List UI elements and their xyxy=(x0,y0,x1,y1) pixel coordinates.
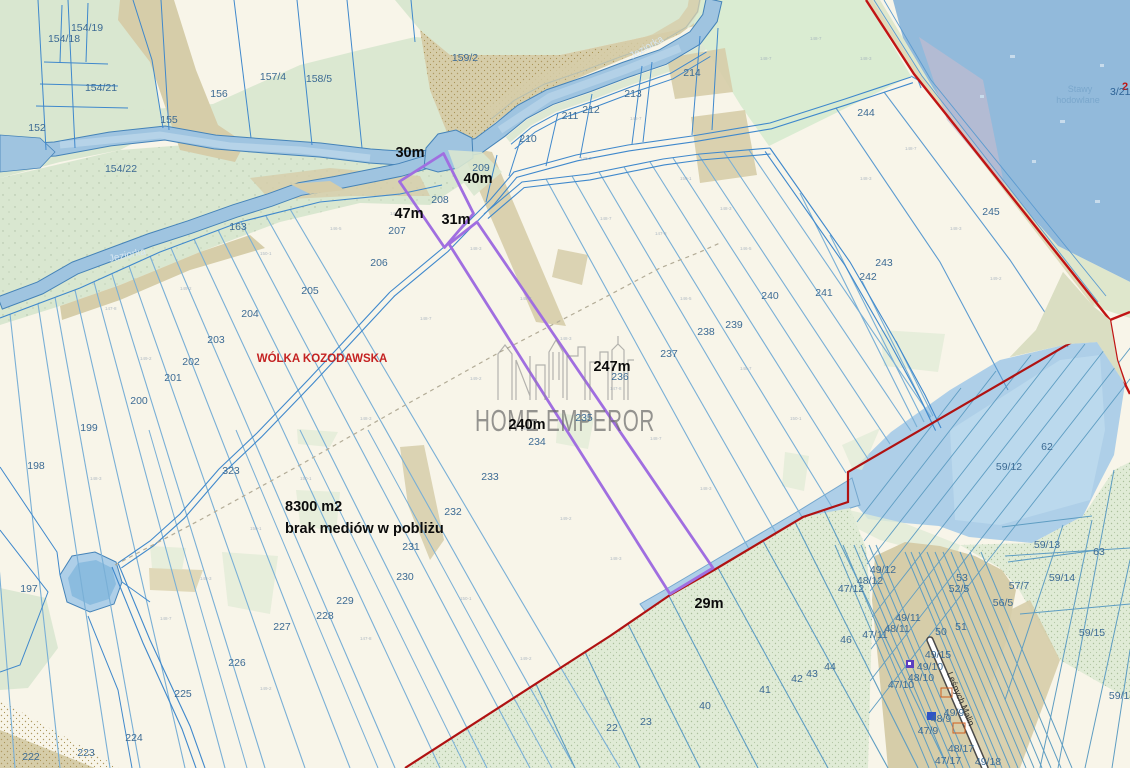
svg-text:152: 152 xyxy=(28,122,46,134)
svg-text:210: 210 xyxy=(519,133,537,145)
svg-text:42: 42 xyxy=(791,673,803,685)
svg-text:46: 46 xyxy=(840,634,852,646)
svg-text:204: 204 xyxy=(241,308,259,320)
svg-text:146-5: 146-5 xyxy=(330,226,342,231)
svg-text:229: 229 xyxy=(336,595,354,607)
svg-text:148-7: 148-7 xyxy=(760,56,772,61)
svg-text:206: 206 xyxy=(370,257,388,269)
svg-text:230: 230 xyxy=(396,571,414,583)
svg-text:149-2: 149-2 xyxy=(140,356,152,361)
svg-text:224: 224 xyxy=(125,732,143,744)
svg-text:155: 155 xyxy=(160,114,178,126)
svg-text:43: 43 xyxy=(806,668,818,680)
svg-text:235: 235 xyxy=(575,412,593,424)
svg-text:48/9: 48/9 xyxy=(931,713,952,725)
svg-text:148-3: 148-3 xyxy=(470,246,482,251)
svg-text:323: 323 xyxy=(222,465,240,477)
svg-text:148-7: 148-7 xyxy=(740,366,752,371)
svg-text:148-3: 148-3 xyxy=(200,576,212,581)
svg-text:232: 232 xyxy=(444,506,462,518)
svg-text:56/5: 56/5 xyxy=(993,597,1014,609)
svg-text:147-8: 147-8 xyxy=(655,231,667,236)
svg-text:51: 51 xyxy=(955,621,967,633)
svg-text:150-1: 150-1 xyxy=(250,526,262,531)
svg-text:157/4: 157/4 xyxy=(260,71,286,83)
svg-text:156: 156 xyxy=(210,88,228,100)
svg-text:243: 243 xyxy=(875,257,893,269)
svg-text:234: 234 xyxy=(528,436,546,448)
svg-text:226: 226 xyxy=(228,657,246,669)
svg-text:158/5: 158/5 xyxy=(306,73,332,85)
svg-text:238: 238 xyxy=(697,326,715,338)
svg-text:148-3: 148-3 xyxy=(950,226,962,231)
svg-text:154/21: 154/21 xyxy=(85,82,117,94)
svg-text:149-2: 149-2 xyxy=(470,376,482,381)
svg-text:237: 237 xyxy=(660,348,678,360)
svg-text:159/2: 159/2 xyxy=(452,52,478,64)
svg-text:148-7: 148-7 xyxy=(420,316,432,321)
svg-text:225: 225 xyxy=(174,688,192,700)
svg-text:241: 241 xyxy=(815,287,833,299)
svg-text:240: 240 xyxy=(761,290,779,302)
svg-text:150-1: 150-1 xyxy=(460,596,472,601)
svg-text:148-3: 148-3 xyxy=(610,556,622,561)
svg-text:154/18: 154/18 xyxy=(48,33,80,45)
svg-text:197: 197 xyxy=(20,583,38,595)
svg-text:199: 199 xyxy=(80,422,98,434)
svg-text:214: 214 xyxy=(683,67,701,79)
svg-text:149-2: 149-2 xyxy=(180,286,192,291)
svg-text:Stawy: Stawy xyxy=(1068,84,1093,94)
svg-text:148-3: 148-3 xyxy=(90,476,102,481)
svg-text:57/7: 57/7 xyxy=(1009,580,1030,592)
svg-text:242: 242 xyxy=(859,271,877,283)
svg-text:brak mediów w pobliżu: brak mediów w pobliżu xyxy=(285,521,444,537)
svg-text:150-1: 150-1 xyxy=(300,476,312,481)
svg-text:30m: 30m xyxy=(395,145,424,161)
svg-text:63: 63 xyxy=(1093,546,1105,558)
svg-text:247m: 247m xyxy=(593,359,630,375)
svg-text:148-3: 148-3 xyxy=(560,336,572,341)
svg-text:148-3: 148-3 xyxy=(580,156,592,161)
svg-text:47/12: 47/12 xyxy=(838,583,864,595)
svg-text:148-7: 148-7 xyxy=(520,296,532,301)
svg-text:59/14: 59/14 xyxy=(1049,572,1075,584)
svg-text:40: 40 xyxy=(699,700,711,712)
svg-text:41: 41 xyxy=(759,684,771,696)
svg-text:147-8: 147-8 xyxy=(610,386,622,391)
svg-text:44: 44 xyxy=(824,661,836,673)
svg-text:52/5: 52/5 xyxy=(949,583,970,595)
svg-text:47/11: 47/11 xyxy=(862,629,888,641)
svg-text:148-7: 148-7 xyxy=(810,36,822,41)
svg-text:150-1: 150-1 xyxy=(680,176,692,181)
svg-text:40m: 40m xyxy=(463,171,492,187)
svg-text:149-2: 149-2 xyxy=(260,686,272,691)
svg-text:146-5: 146-5 xyxy=(680,296,692,301)
svg-text:240m: 240m xyxy=(508,417,545,433)
svg-text:148-7: 148-7 xyxy=(600,216,612,221)
svg-text:148-3: 148-3 xyxy=(720,206,732,211)
svg-text:59/13: 59/13 xyxy=(1034,539,1060,551)
svg-text:228: 228 xyxy=(316,610,334,622)
svg-text:47/9: 47/9 xyxy=(918,725,939,737)
svg-text:47m: 47m xyxy=(394,206,423,222)
svg-text:149-2: 149-2 xyxy=(560,516,572,521)
svg-text:163: 163 xyxy=(229,221,247,233)
svg-text:148-3: 148-3 xyxy=(860,176,872,181)
svg-text:212: 212 xyxy=(582,104,600,116)
svg-text:49/15: 49/15 xyxy=(925,649,951,661)
svg-text:148-7: 148-7 xyxy=(905,146,917,151)
svg-text:149-2: 149-2 xyxy=(990,276,1002,281)
svg-text:50: 50 xyxy=(935,626,947,638)
svg-text:47/17: 47/17 xyxy=(935,755,961,767)
svg-text:22: 22 xyxy=(606,722,618,734)
svg-text:3/21: 3/21 xyxy=(1110,86,1130,98)
svg-text:154/19: 154/19 xyxy=(71,22,103,34)
svg-text:154/22: 154/22 xyxy=(105,163,137,175)
svg-text:150-1: 150-1 xyxy=(790,416,802,421)
svg-text:200: 200 xyxy=(130,395,148,407)
svg-text:hodowlane: hodowlane xyxy=(1056,95,1100,105)
svg-text:HOME EMPEROR: HOME EMPEROR xyxy=(475,403,655,438)
svg-text:148-3: 148-3 xyxy=(360,416,372,421)
svg-text:147-8: 147-8 xyxy=(105,306,117,311)
svg-text:59/16: 59/16 xyxy=(1109,690,1130,702)
svg-text:148-7: 148-7 xyxy=(160,616,172,621)
svg-text:211: 211 xyxy=(562,110,579,122)
svg-text:148-3: 148-3 xyxy=(700,486,712,491)
svg-text:223: 223 xyxy=(77,747,95,759)
svg-text:227: 227 xyxy=(273,621,291,633)
svg-text:222: 222 xyxy=(22,751,40,763)
svg-text:207: 207 xyxy=(388,225,406,237)
svg-text:148-7: 148-7 xyxy=(600,696,612,701)
svg-text:198: 198 xyxy=(27,460,45,472)
svg-text:205: 205 xyxy=(301,285,319,297)
svg-text:244: 244 xyxy=(857,107,875,119)
svg-text:48/11: 48/11 xyxy=(884,623,910,635)
svg-text:WÓLKA KOZODAWSKA: WÓLKA KOZODAWSKA xyxy=(257,352,388,365)
svg-text:213: 213 xyxy=(624,88,642,100)
svg-text:148-7: 148-7 xyxy=(650,436,662,441)
svg-text:149-2: 149-2 xyxy=(520,656,532,661)
svg-text:23: 23 xyxy=(640,716,652,728)
svg-text:150-1: 150-1 xyxy=(260,251,272,256)
svg-text:146-5: 146-5 xyxy=(740,246,752,251)
svg-text:233: 233 xyxy=(481,471,499,483)
svg-text:231: 231 xyxy=(402,541,420,553)
svg-text:208: 208 xyxy=(431,194,449,206)
svg-text:148-3: 148-3 xyxy=(860,56,872,61)
svg-text:202: 202 xyxy=(182,356,200,368)
svg-text:49/18: 49/18 xyxy=(975,756,1001,768)
svg-text:245: 245 xyxy=(982,206,1000,218)
svg-text:59/12: 59/12 xyxy=(996,461,1022,473)
svg-text:59/15: 59/15 xyxy=(1079,627,1105,639)
svg-text:239: 239 xyxy=(725,319,743,331)
svg-text:29m: 29m xyxy=(694,596,723,612)
svg-text:62: 62 xyxy=(1041,441,1053,453)
svg-text:148-7: 148-7 xyxy=(630,116,642,121)
svg-text:147-8: 147-8 xyxy=(360,636,372,641)
svg-text:47/10: 47/10 xyxy=(888,679,914,691)
svg-text:201: 201 xyxy=(164,372,182,384)
svg-text:8300 m2: 8300 m2 xyxy=(285,499,342,515)
svg-text:31m: 31m xyxy=(441,212,470,228)
svg-text:48/17: 48/17 xyxy=(948,743,974,755)
svg-text:203: 203 xyxy=(207,334,225,346)
